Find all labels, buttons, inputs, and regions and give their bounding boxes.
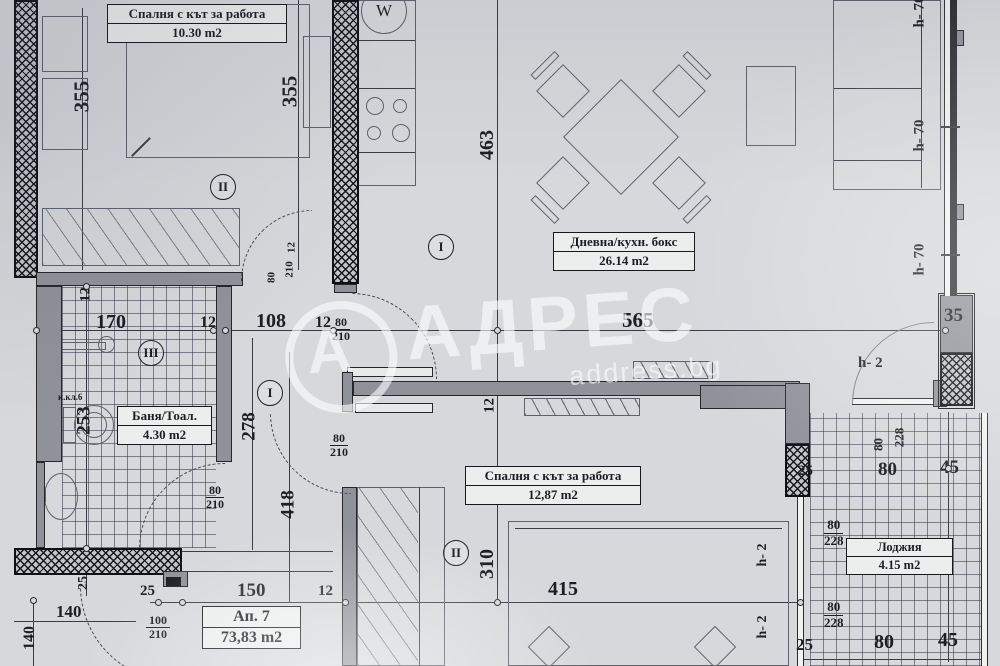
wall-bedroom1-bottom — [36, 272, 243, 286]
dim-355-left: 355 — [72, 67, 93, 127]
window-sill-nub — [956, 30, 964, 46]
label-bathroom: Баня/Тоал. 4.30 m2 — [117, 406, 212, 445]
wardrobe-bedroom1 — [42, 208, 240, 266]
dim-entry-door: 100 210 — [146, 614, 170, 642]
dim-line — [800, 659, 986, 660]
dim-80-loggia-b: 80 — [874, 632, 894, 652]
room-name: Спалня с кът за работа — [466, 467, 640, 486]
room-numeral-living: I — [428, 234, 454, 260]
dim-25-band: 25 — [77, 561, 91, 605]
dim-80-door1: 80 — [267, 256, 278, 300]
apartment-area: 73,83 m2 — [203, 628, 300, 648]
stove-burner — [367, 126, 381, 140]
door-width: 80 — [330, 432, 348, 446]
room-area: 26.14 m2 — [554, 252, 694, 270]
room-area: 4.15 m2 — [847, 557, 952, 574]
dim-tick — [494, 327, 501, 334]
dim-25-loggia: 25 — [798, 464, 813, 479]
room-name: Лоджия — [847, 539, 952, 557]
dim-tick — [342, 599, 349, 606]
wall-bathroom-left-thin — [36, 462, 45, 548]
wall-bathroom-right — [216, 286, 232, 462]
room-numeral-bathroom: III — [138, 340, 164, 366]
nightstand — [42, 16, 88, 72]
door-width: 80 — [206, 484, 224, 498]
dim-h70-window: h- 70 — [913, 238, 928, 282]
dim-170: 170 — [96, 312, 126, 332]
dim-h2-window: h- 2 — [756, 533, 770, 577]
dim-line — [36, 330, 948, 331]
floor-plan: W — [0, 0, 1000, 666]
room-name: Баня/Тоал. — [118, 407, 211, 426]
stove-burner — [366, 97, 384, 115]
dim-bedroom2-door: 80 210 — [330, 432, 348, 460]
dim-35-pier: 35 — [944, 306, 963, 325]
dim-565: 565 — [622, 310, 654, 331]
label-loggia: Лоджия 4.15 m2 — [846, 538, 953, 575]
washing-machine-label: W — [376, 2, 392, 19]
dim-line — [497, 0, 498, 604]
wardrobe-stripes — [358, 488, 418, 665]
dim-tick — [330, 327, 337, 334]
label-bedroom2: Спалня с кът за работа 12,87 m2 — [465, 466, 641, 505]
dim-tick — [83, 545, 90, 552]
wall-living-bedroom2-right — [700, 385, 786, 409]
dim-tick — [155, 599, 162, 606]
label-apartment: Ап. 7 73,83 m2 — [202, 606, 301, 649]
door-height: 210 — [206, 498, 224, 511]
washbasin — [44, 473, 78, 520]
dim-415: 415 — [548, 579, 578, 599]
towel-rail-knob — [98, 336, 115, 353]
dim-tick — [83, 283, 90, 290]
dim-355-right: 355 — [280, 62, 301, 122]
sofa-cushion-line — [834, 88, 921, 89]
dim-h70-window: h- 70 — [913, 114, 928, 158]
dim-tick — [210, 327, 217, 334]
dim-tick — [30, 597, 37, 604]
dim-h2-window: h- 2 — [756, 605, 770, 649]
dim-12: 12 — [315, 315, 331, 331]
window-width: 80 — [824, 600, 843, 616]
dim-310: 310 — [477, 534, 497, 594]
dim-bathroom-door: 80 210 — [206, 484, 224, 512]
dim-tick — [222, 327, 229, 334]
dim-25: 25 — [140, 584, 155, 599]
coffee-table — [746, 66, 796, 146]
wall-exterior-left — [14, 0, 38, 278]
window-width: 80 — [824, 518, 843, 534]
dim-12-wall: 12 — [483, 382, 498, 430]
dim-418: 418 — [279, 475, 298, 535]
window-mullion — [941, 126, 960, 128]
window-mullion — [941, 254, 960, 256]
stove-burner — [393, 99, 407, 113]
label-bedroom1: Спалня с кът за работа 10.30 m2 — [107, 4, 287, 43]
dim-25-loggia-b: 25 — [796, 636, 813, 653]
dim-loggia-window1: 80 228 — [824, 518, 844, 548]
dim-140-h: 140 — [56, 603, 82, 620]
apartment-number: Ап. 7 — [203, 607, 300, 628]
dim-12-bath: 12 — [79, 271, 94, 319]
dining-chair — [536, 156, 590, 210]
dim-45-loggia-b: 45 — [938, 630, 958, 650]
room-name: Дневна/кухн. бокс — [554, 233, 694, 252]
dim-12: 12 — [318, 584, 333, 599]
radiator-bedroom2 — [524, 398, 640, 416]
dim-tick — [945, 465, 952, 472]
counter-divider — [359, 40, 415, 41]
work-desk-bedroom1 — [303, 36, 331, 128]
window-height: 228 — [824, 534, 844, 549]
wall-bathroom-left — [36, 286, 62, 462]
window-sill-nub — [956, 204, 964, 220]
dim-210-door1: 210 — [285, 248, 296, 292]
room-area: 12,87 m2 — [466, 486, 640, 504]
wall-loggia-left-upper — [785, 383, 810, 444]
room-numeral-bedroom1: II — [210, 174, 236, 200]
dim-tick — [33, 327, 40, 334]
dim-h2-door: h- 2 — [858, 356, 883, 371]
counter-divider — [359, 152, 415, 153]
dim-h70-window: h- 70 — [913, 0, 928, 34]
label-living: Дневна/кухн. бокс 26.14 m2 — [553, 232, 695, 271]
dim-150: 150 — [237, 581, 266, 600]
dim-loggia-window2: 80 228 — [824, 600, 844, 630]
counter-divider — [359, 88, 415, 89]
dim-463: 463 — [477, 115, 497, 175]
dim-tick — [797, 599, 804, 606]
door-width: 100 — [146, 614, 170, 628]
door-height: 210 — [146, 628, 170, 641]
dim-tick — [179, 599, 186, 606]
dim-140-v: 140 — [22, 616, 38, 660]
window-height: 228 — [824, 616, 844, 631]
wardrobe-divider — [419, 487, 420, 666]
dim-278: 278 — [240, 397, 259, 457]
room-area: 4.30 m2 — [118, 426, 211, 444]
radiator-living — [633, 361, 713, 379]
sofa-cushion-line — [834, 160, 921, 161]
wall-bedroom2-left — [342, 487, 357, 666]
dim-tick — [942, 327, 949, 334]
shaft-label: к.кл.6 — [58, 393, 82, 402]
dining-chair — [536, 64, 590, 118]
dim-tick — [494, 599, 501, 606]
dim-108: 108 — [256, 311, 286, 331]
stove-burner — [392, 124, 410, 142]
dim-80-loggia: 80 — [878, 460, 897, 479]
room-area: 10.30 m2 — [108, 24, 286, 42]
bed2-inner-line — [515, 528, 782, 529]
door-height: 210 — [330, 446, 348, 459]
dim-228-loggia-door: 228 — [893, 412, 906, 464]
room-numeral-bedroom2: II — [443, 540, 469, 566]
room-numeral-hall: I — [257, 380, 283, 406]
room-name: Спалня с кът за работа — [108, 5, 286, 24]
